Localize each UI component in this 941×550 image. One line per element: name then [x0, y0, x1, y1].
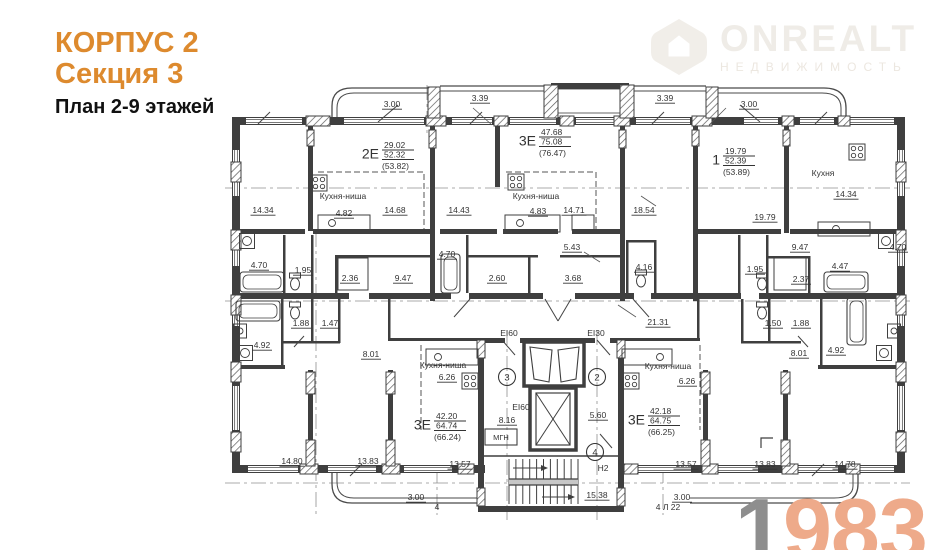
year-watermark-suffix: 983	[783, 490, 927, 550]
dim-label: 4.92	[828, 345, 845, 355]
dim-label: Н2	[598, 463, 609, 473]
dim-label: 4.70	[439, 249, 456, 259]
apartment-living-area: 29.02	[384, 140, 406, 150]
dim-label: 9.47	[792, 242, 809, 252]
room-name-label: Кухня-ниша	[420, 360, 467, 370]
dim-label: EI30	[587, 328, 605, 338]
year-watermark-prefix: 1	[735, 490, 783, 550]
room-name-label: Кухня-ниша	[645, 361, 692, 371]
apartment-type: 3Е	[414, 417, 431, 433]
room-name-label: Кухня	[812, 168, 835, 178]
dim-label: 1.47	[322, 318, 339, 328]
dim-label: 3.68	[565, 273, 582, 283]
apartment-type: 2Е	[362, 146, 379, 162]
dim-label: 14.71	[563, 205, 585, 215]
dim-label: 5.60	[590, 410, 607, 420]
axis-centerlines	[225, 85, 910, 520]
apartment-full-area: (66.25)	[648, 427, 675, 437]
dim-label: 4	[435, 502, 440, 512]
dim-label: 4.83	[530, 206, 547, 216]
dim-label: 14.43	[448, 205, 470, 215]
dim-label: 6.26	[439, 372, 456, 382]
dim-label: 13.57	[449, 459, 471, 469]
dim-label: 2.37	[793, 274, 810, 284]
dim-label: 8.16	[499, 415, 516, 425]
dim-label: 4.70	[890, 242, 907, 252]
dim-label: 4.82	[336, 208, 353, 218]
room-name-label: Кухня-ниша	[320, 191, 367, 201]
mgn-label: МГН	[493, 433, 509, 442]
dim-label: 3.00	[408, 492, 425, 502]
apartment-type: 3Е	[628, 412, 645, 428]
dim-label: 4 Л 22	[656, 502, 681, 512]
dim-label: 18.54	[633, 205, 655, 215]
dim-label: 1.95	[747, 264, 764, 274]
apartment-total-area: 52.39	[725, 156, 747, 166]
floor-plan: 3.003.393.393.00Кухня-ниша14.344.8214.68…	[0, 0, 941, 550]
dim-label: 4.16	[636, 262, 653, 272]
dim-label: 2.60	[489, 273, 506, 283]
year-watermark: 1983	[735, 490, 927, 550]
dim-label: 9.47	[395, 273, 412, 283]
dim-label: 1.95	[295, 265, 312, 275]
dim-label: 13.83	[754, 459, 776, 469]
apartment-label: 3Е42.1864.75(66.25)	[628, 406, 680, 437]
dim-label: 14.68	[384, 205, 406, 215]
dim-label: 3.00	[741, 99, 758, 109]
apartment-total-area: 52.32	[384, 150, 406, 160]
dim-label: 4.47	[832, 261, 849, 271]
dim-label: 14.80	[281, 456, 303, 466]
dim-label: EI60	[500, 328, 518, 338]
dim-label: 14.34	[252, 205, 274, 215]
dim-label: 4.70	[251, 260, 268, 270]
dim-label: 19.79	[754, 212, 776, 222]
apartment-living-area: 42.20	[436, 411, 458, 421]
apartment-label: 2Е29.0252.32(53.82)	[362, 140, 414, 171]
dim-label: 13.57	[675, 459, 697, 469]
dim-label: 15.38	[586, 490, 608, 500]
apartment-label: 119.7952.39(53.89)	[712, 146, 755, 177]
dim-label: 3.00	[384, 99, 401, 109]
apartment-full-area: (53.89)	[723, 167, 750, 177]
apartment-living-area: 42.18	[650, 406, 672, 416]
dim-label: EI60	[512, 402, 530, 412]
page: КОРПУС 2 Секция 3 План 2-9 этажей ONREAL…	[0, 0, 941, 550]
apartment-total-area: 64.75	[650, 416, 672, 426]
apartment-full-area: (53.82)	[382, 161, 409, 171]
apartment-full-area: (66.24)	[434, 432, 461, 442]
apartment-label: 3Е47.6875.08(76.47)	[519, 127, 571, 158]
apartment-type: 3Е	[519, 133, 536, 149]
entrance-number: 4	[592, 447, 597, 458]
dim-label: 14.34	[835, 189, 857, 199]
dim-label: 5.43	[564, 242, 581, 252]
entrance-number: 2	[594, 372, 599, 383]
apartment-label: 3Е42.2064.74(66.24)	[414, 411, 466, 442]
apartment-type: 1	[712, 152, 720, 168]
dim-label: 21.31	[647, 317, 669, 327]
dim-label: 8.01	[791, 348, 808, 358]
dim-label: 3.39	[657, 93, 674, 103]
dim-label: 1.88	[293, 318, 310, 328]
dim-label: 2.36	[342, 273, 359, 283]
dim-label: 3.39	[472, 93, 489, 103]
dim-label: 13.83	[357, 456, 379, 466]
apartment-living-area: 47.68	[541, 127, 563, 137]
dim-label: 1.88	[793, 318, 810, 328]
dim-label: 1.50	[765, 318, 782, 328]
dim-label: 8.01	[363, 349, 380, 359]
apartment-living-area: 19.79	[725, 146, 747, 156]
room-name-label: Кухня-ниша	[513, 191, 560, 201]
dim-label: 6.26	[679, 376, 696, 386]
apartment-total-area: 64.74	[436, 421, 458, 431]
labels-layer: 3.003.393.393.00Кухня-ниша14.344.8214.68…	[249, 93, 908, 512]
entrance-number: 3	[504, 372, 509, 383]
apartment-full-area: (76.47)	[539, 148, 566, 158]
dim-label: 4.92	[254, 340, 271, 350]
dim-label: 14.78	[834, 459, 856, 469]
dim-label: 3.00	[674, 492, 691, 502]
apartment-total-area: 75.08	[541, 137, 563, 147]
